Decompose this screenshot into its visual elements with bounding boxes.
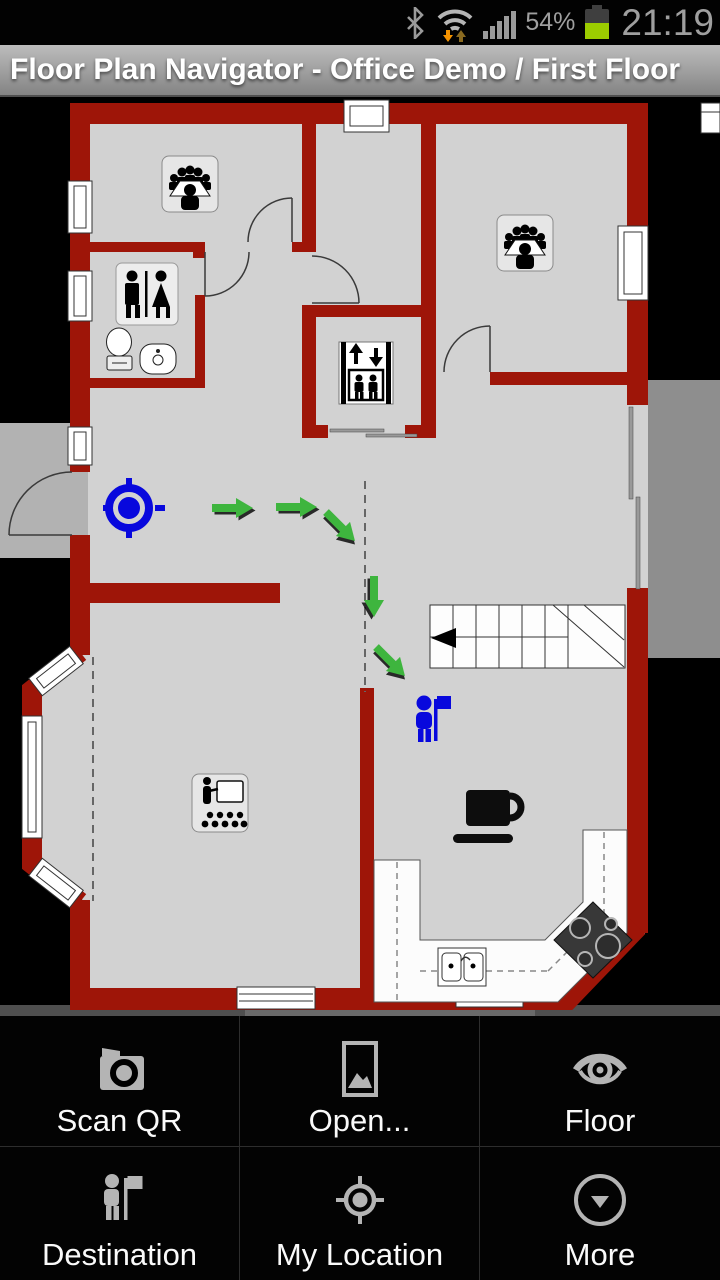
crosshair-icon bbox=[328, 1171, 392, 1229]
presentation-room-icon bbox=[192, 774, 248, 832]
title-bar: Floor Plan Navigator - Office Demo / Fir… bbox=[0, 45, 720, 97]
person-flag-icon bbox=[88, 1171, 152, 1229]
menu-item-destination[interactable]: Destination bbox=[0, 1147, 239, 1280]
menu-item-my-location[interactable]: My Location bbox=[240, 1147, 479, 1280]
menu-item-scan-qr[interactable]: Scan QR bbox=[0, 1016, 239, 1146]
bottom-menu: Scan QR Open... Floor bbox=[0, 1016, 720, 1280]
menu-item-label: My Location bbox=[276, 1237, 443, 1273]
menu-item-floor[interactable]: Floor bbox=[480, 1016, 720, 1146]
circle-chevron-down-icon bbox=[568, 1171, 632, 1229]
sink-icon bbox=[140, 344, 176, 374]
bluetooth-icon bbox=[402, 7, 428, 39]
meeting-room-icon bbox=[162, 156, 218, 212]
floor-area bbox=[25, 103, 648, 1008]
eye-icon bbox=[568, 1040, 632, 1098]
menu-item-label: Open... bbox=[309, 1103, 411, 1139]
kitchen-sink bbox=[438, 948, 486, 986]
phone-screen: 54% 21:19 Floor Plan Navigator - Office … bbox=[0, 0, 720, 1280]
stairs bbox=[430, 605, 625, 668]
status-bar: 54% 21:19 bbox=[0, 0, 720, 45]
terrace bbox=[648, 380, 720, 658]
picture-icon bbox=[328, 1040, 392, 1098]
battery-percent: 54% bbox=[525, 8, 575, 37]
menu-item-open[interactable]: Open... bbox=[240, 1016, 479, 1146]
wifi-data-icon bbox=[435, 4, 475, 42]
clock: 21:19 bbox=[621, 2, 714, 44]
elevator-icon bbox=[339, 342, 393, 404]
meeting-room-icon bbox=[497, 215, 553, 271]
restroom-icon bbox=[116, 263, 178, 325]
page-title: Floor Plan Navigator - Office Demo / Fir… bbox=[0, 53, 680, 87]
menu-item-label: Destination bbox=[42, 1237, 197, 1273]
battery-icon bbox=[582, 3, 612, 43]
menu-item-label: Scan QR bbox=[57, 1103, 183, 1139]
floor-plan-map[interactable] bbox=[0, 97, 720, 1016]
signal-strength-icon bbox=[482, 7, 518, 39]
menu-item-label: More bbox=[565, 1237, 636, 1273]
menu-item-label: Floor bbox=[565, 1103, 636, 1139]
camera-icon bbox=[88, 1040, 152, 1098]
menu-item-more[interactable]: More bbox=[480, 1147, 720, 1280]
